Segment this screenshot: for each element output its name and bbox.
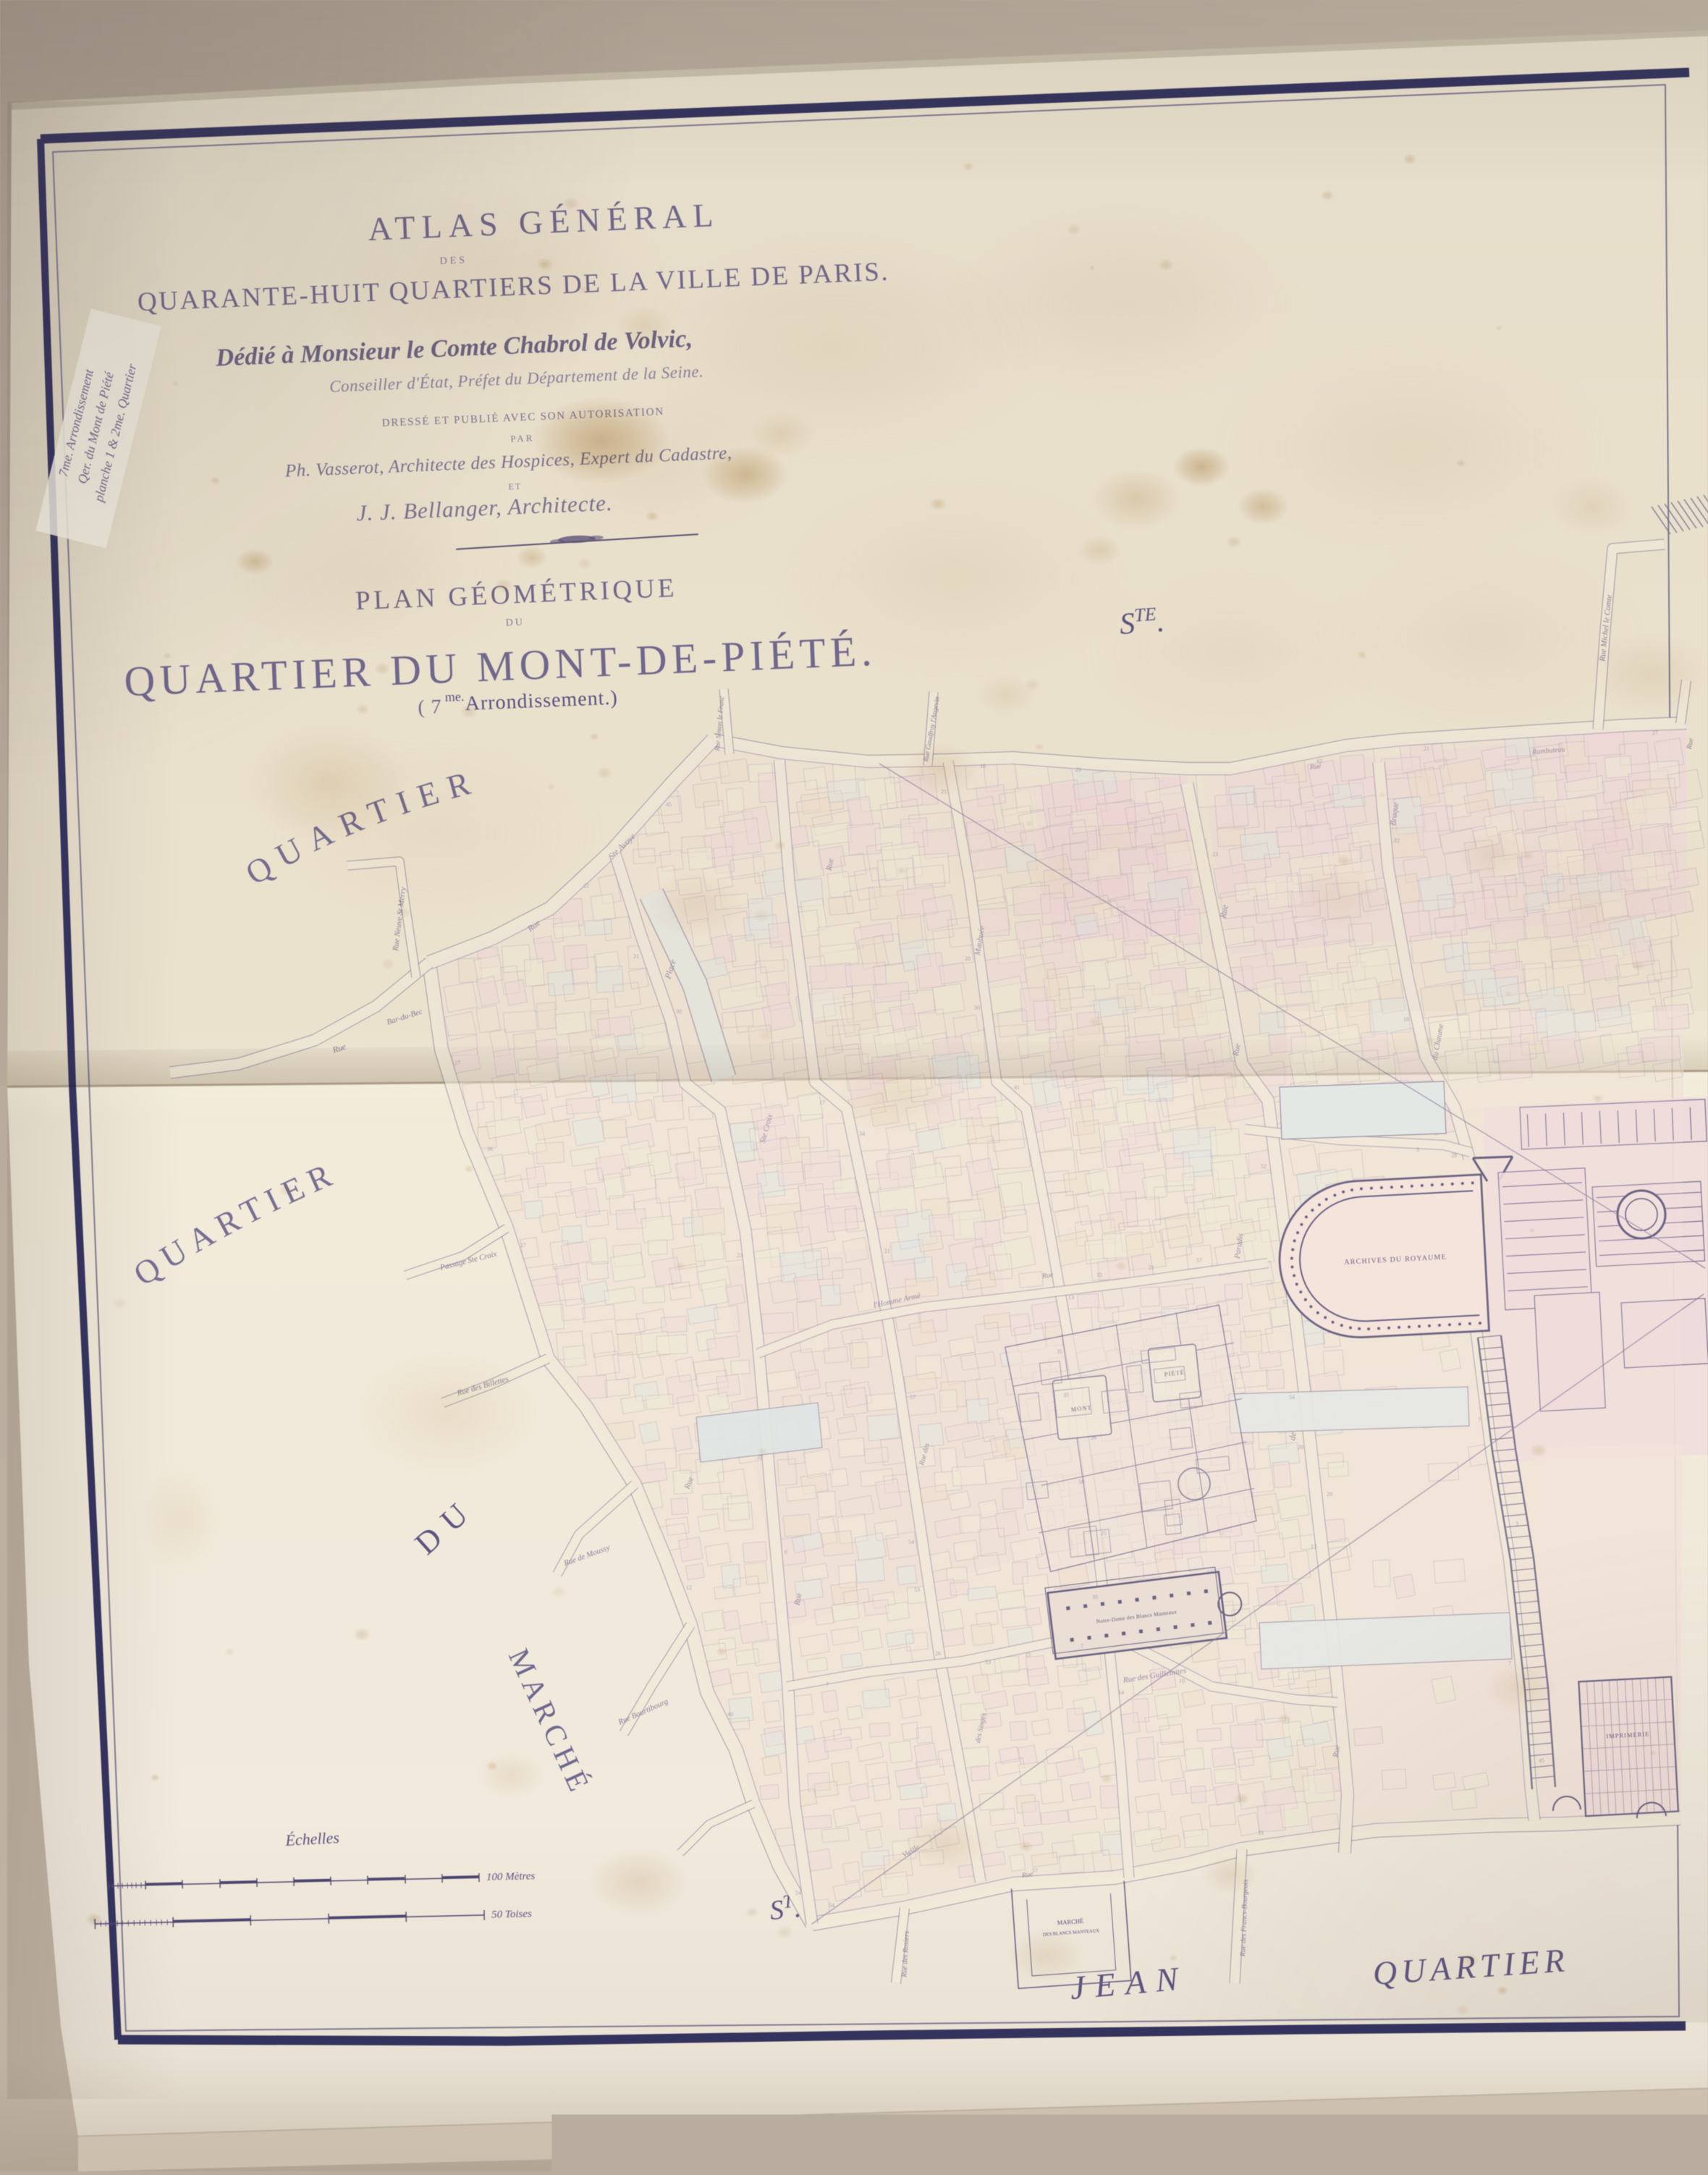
svg-text:Échelles: Échelles [284,1828,340,1849]
svg-text:50 Toises: 50 Toises [491,1908,532,1920]
svg-text:100 Mètres: 100 Mètres [486,1870,536,1883]
